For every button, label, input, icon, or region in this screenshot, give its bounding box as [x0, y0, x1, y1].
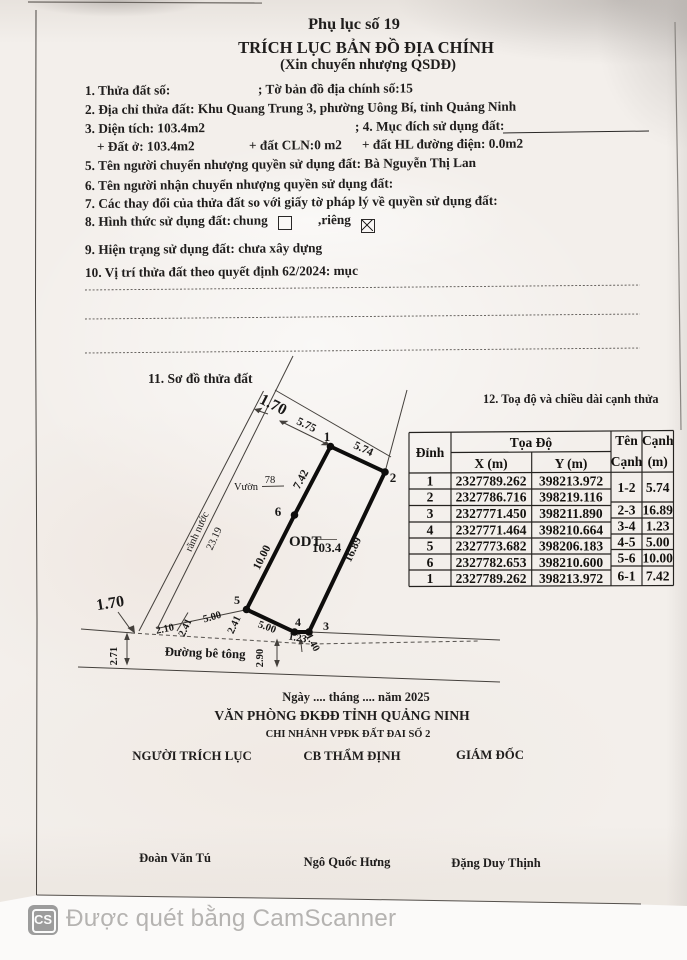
- svg-text:398211.890: 398211.890: [539, 506, 603, 521]
- svg-text:16.89: 16.89: [342, 535, 364, 564]
- svg-text:398213.972: 398213.972: [539, 474, 603, 489]
- svg-text:3: 3: [427, 506, 434, 521]
- svg-text:3: 3: [323, 619, 329, 633]
- svg-text:Đỉnh: Đỉnh: [416, 445, 445, 460]
- svg-text:5.74: 5.74: [646, 480, 670, 495]
- svg-text:2327771.464: 2327771.464: [456, 523, 527, 538]
- svg-text:103.4: 103.4: [312, 540, 342, 555]
- svg-text:1: 1: [427, 474, 434, 489]
- svg-text:4: 4: [295, 615, 301, 629]
- svg-text:10.00: 10.00: [643, 551, 674, 566]
- svg-text:2327789.262: 2327789.262: [456, 571, 527, 586]
- svg-text:7.42: 7.42: [646, 569, 670, 584]
- svg-text:78: 78: [265, 475, 276, 486]
- svg-text:4: 4: [427, 523, 434, 538]
- svg-text:398210.600: 398210.600: [539, 555, 603, 570]
- svg-text:1.70: 1.70: [95, 593, 125, 614]
- svg-text:5-6: 5-6: [618, 551, 636, 566]
- svg-text:398219.116: 398219.116: [539, 490, 603, 505]
- svg-text:398213.972: 398213.972: [539, 571, 603, 586]
- svg-text:2327773.682: 2327773.682: [456, 539, 527, 554]
- svg-text:398210.664: 398210.664: [539, 523, 603, 538]
- svg-text:2.41: 2.41: [226, 614, 244, 635]
- svg-text:6: 6: [275, 504, 282, 519]
- svg-text:(m): (m): [648, 454, 668, 469]
- svg-text:2: 2: [427, 490, 434, 505]
- svg-text:2.10: 2.10: [155, 622, 175, 637]
- svg-text:2327782.653: 2327782.653: [456, 555, 527, 570]
- svg-text:1: 1: [324, 429, 331, 444]
- svg-text:5.75: 5.75: [295, 416, 319, 435]
- svg-text:Tọa Độ: Tọa Độ: [510, 435, 553, 450]
- svg-text:Tên: Tên: [615, 433, 638, 448]
- svg-text:1-2: 1-2: [618, 480, 636, 495]
- svg-text:2.90: 2.90: [255, 649, 266, 667]
- svg-text:4-5: 4-5: [618, 535, 636, 550]
- svg-text:2.41: 2.41: [177, 617, 195, 638]
- svg-text:3-4: 3-4: [618, 519, 636, 534]
- svg-text:2: 2: [390, 470, 397, 485]
- svg-text:2327786.716: 2327786.716: [456, 490, 527, 505]
- svg-text:5.00: 5.00: [646, 535, 670, 550]
- svg-text:Cạnh: Cạnh: [611, 454, 643, 469]
- svg-text:10.00: 10.00: [251, 543, 274, 572]
- svg-text:2.71: 2.71: [109, 647, 120, 665]
- svg-text:5: 5: [234, 593, 240, 607]
- svg-text:X (m): X (m): [474, 456, 507, 471]
- svg-text:6-1: 6-1: [618, 569, 636, 584]
- svg-text:Đường bê tông: Đường bê tông: [164, 645, 246, 662]
- svg-text:Vườn: Vườn: [234, 482, 259, 493]
- svg-text:16.89: 16.89: [643, 503, 674, 518]
- svg-text:1.23: 1.23: [646, 519, 670, 534]
- svg-text:2-3: 2-3: [618, 503, 636, 518]
- svg-text:5: 5: [427, 539, 434, 554]
- svg-text:2327789.262: 2327789.262: [456, 474, 527, 489]
- svg-text:5.00: 5.00: [202, 610, 223, 626]
- svg-text:23.19: 23.19: [205, 526, 225, 552]
- svg-text:Y (m): Y (m): [555, 456, 588, 471]
- svg-text:398206.183: 398206.183: [539, 539, 603, 554]
- svg-text:2327771.450: 2327771.450: [456, 506, 527, 521]
- svg-text:6: 6: [427, 555, 434, 570]
- svg-text:Cạnh: Cạnh: [642, 433, 674, 448]
- svg-text:1: 1: [427, 571, 434, 586]
